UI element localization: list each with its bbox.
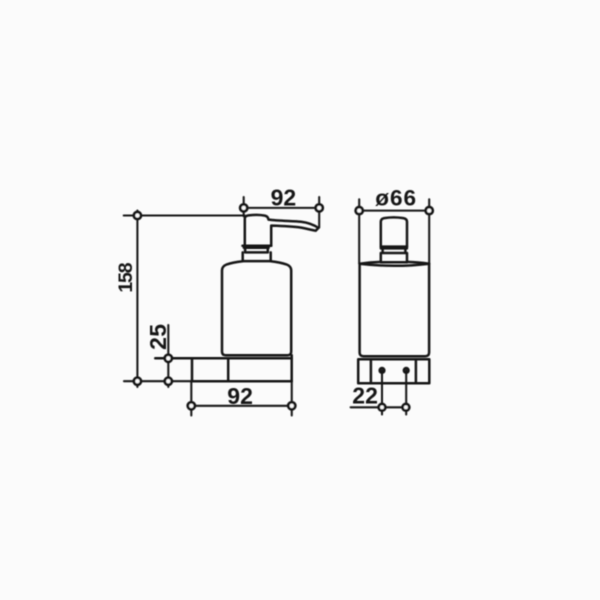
svg-text:25: 25 <box>145 324 171 350</box>
svg-text:92: 92 <box>227 383 253 409</box>
svg-text:ø66: ø66 <box>375 185 417 210</box>
svg-text:92: 92 <box>271 184 297 210</box>
svg-text:158: 158 <box>115 262 137 292</box>
svg-text:22: 22 <box>352 383 378 409</box>
